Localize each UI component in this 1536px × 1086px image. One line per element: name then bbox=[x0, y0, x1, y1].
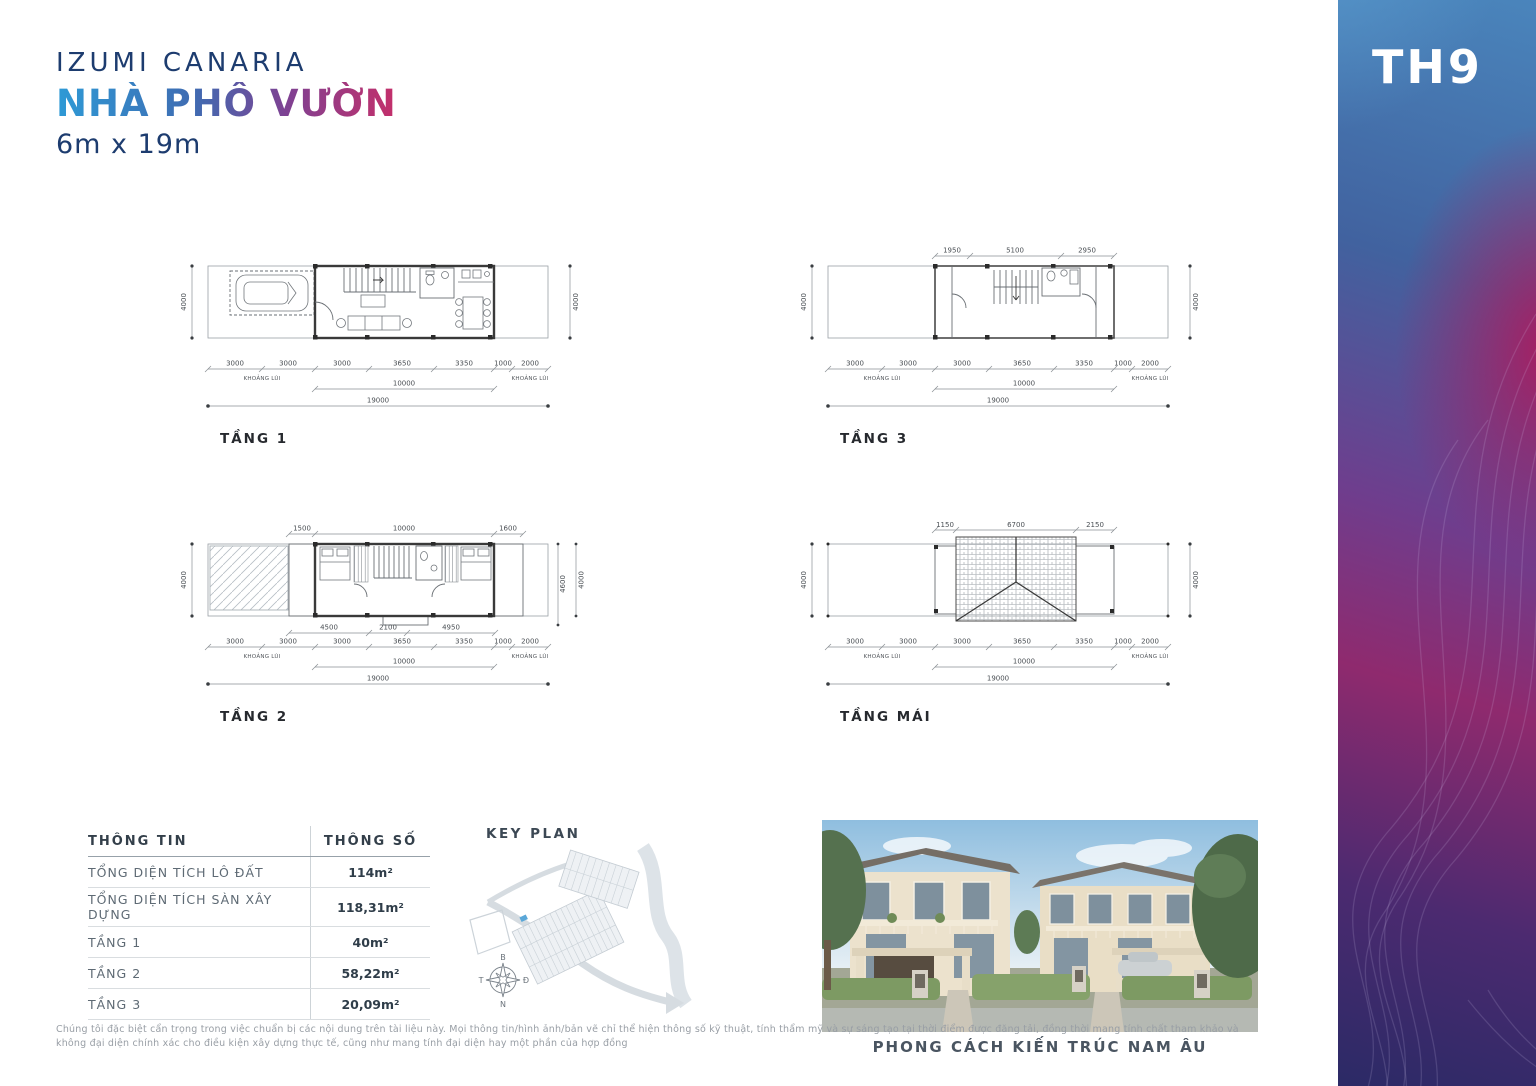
bathroom bbox=[1042, 268, 1080, 296]
disclaimer-text: Chúng tôi đặc biệt cẩn trọng trong việc … bbox=[56, 1023, 1271, 1052]
dim-label: 4000 bbox=[572, 293, 580, 311]
dim-label: 19000 bbox=[367, 675, 389, 683]
table-row: TẦNG 2 58,22m² bbox=[88, 958, 430, 989]
dim-label: 10000 bbox=[393, 658, 415, 666]
setback-label: KHOẢNG LÙI bbox=[512, 652, 549, 660]
dim-label: 10000 bbox=[1013, 658, 1035, 666]
info-table: THÔNG TIN THÔNG SỐ TỔNG DIỆN TÍCH LÔ ĐẤT… bbox=[88, 826, 430, 1020]
dim-label: 4000 bbox=[800, 293, 808, 311]
row-label: TẦNG 2 bbox=[88, 962, 310, 985]
dim-label: 3350 bbox=[455, 638, 473, 646]
row-label: TẦNG 3 bbox=[88, 993, 310, 1016]
floor-plan-tang-2: 1500 10000 1600 4500 2100 4950 4000 4600… bbox=[178, 520, 598, 732]
bedroom-right bbox=[461, 547, 491, 580]
dim-label: 3000 bbox=[333, 638, 351, 646]
row-value: 40m² bbox=[310, 927, 430, 957]
housing-cluster-main bbox=[512, 890, 624, 984]
door-left bbox=[952, 294, 966, 308]
dim-label: 4000 bbox=[800, 571, 808, 589]
setback-label: KHOẢNG LÙI bbox=[244, 652, 281, 660]
dim-label: 3000 bbox=[226, 360, 244, 368]
header: IZUMI CANARIA NHÀ PHỐ VƯỜN 6m x 19m bbox=[56, 48, 397, 160]
bathroom bbox=[416, 546, 442, 580]
dim-label: 10000 bbox=[393, 380, 415, 388]
dim-label: 3350 bbox=[455, 360, 473, 368]
car-cabin bbox=[1128, 952, 1158, 962]
wardrobe-right bbox=[445, 546, 458, 582]
dim-label: 1000 bbox=[1114, 638, 1132, 646]
plan-title: TẦNG MÁI bbox=[840, 706, 932, 725]
floor-plan-tang-1: 4000 4000 3000 3000 3000 3650 3350 1000 … bbox=[178, 242, 598, 454]
compass: B Đ N T bbox=[478, 953, 530, 1009]
dim-label: 3000 bbox=[953, 638, 971, 646]
setback-label: KHOẢNG LÙI bbox=[1132, 652, 1169, 660]
dim-label: 1150 bbox=[936, 521, 954, 529]
row-label: TỔNG DIỆN TÍCH LÔ ĐẤT bbox=[88, 861, 310, 884]
key-plan-title: KEY PLAN bbox=[486, 826, 708, 842]
dim-label: 19000 bbox=[367, 397, 389, 405]
product-title: NHÀ PHỐ VƯỜN bbox=[56, 82, 397, 125]
dim-label: 3000 bbox=[846, 638, 864, 646]
dim-label: 3000 bbox=[899, 360, 917, 368]
row-value: 58,22m² bbox=[310, 958, 430, 988]
dim-label: 3650 bbox=[1013, 638, 1031, 646]
kitchen bbox=[458, 270, 494, 282]
setback-label: KHOẢNG LÙI bbox=[864, 652, 901, 660]
dim-label: 1500 bbox=[293, 525, 311, 533]
dim-label: 3650 bbox=[393, 638, 411, 646]
living-set bbox=[337, 295, 412, 330]
dim-label: 2000 bbox=[1141, 638, 1159, 646]
dim-label: 2100 bbox=[379, 624, 397, 632]
unit-code: TH9 bbox=[1372, 40, 1483, 94]
dim-label: 4000 bbox=[578, 571, 586, 589]
dim-label: 4000 bbox=[1192, 571, 1200, 589]
dim-label: 4950 bbox=[442, 624, 460, 632]
dim-label: 19000 bbox=[987, 675, 1009, 683]
dim-label: 4500 bbox=[320, 624, 338, 632]
key-plan-map: B Đ N T bbox=[458, 842, 708, 1022]
table-header-row: THÔNG TIN THÔNG SỐ bbox=[88, 826, 430, 857]
dim-label: 1000 bbox=[1114, 360, 1132, 368]
dim-label: 4600 bbox=[559, 575, 567, 593]
floor-plan-2-drawing: 1500 10000 1600 4500 2100 4950 4000 4600… bbox=[178, 520, 598, 732]
stairs bbox=[994, 270, 1038, 304]
sidebar-curves-decoration bbox=[1338, 0, 1536, 1086]
compass-north: B bbox=[500, 953, 506, 962]
plan-title: TẦNG 1 bbox=[220, 428, 288, 447]
floor-plan-tang-3: 1950 5100 2950 4000 4000 3000 3000 3000 … bbox=[798, 242, 1218, 454]
dim-label: 3650 bbox=[1013, 360, 1031, 368]
compass-east: Đ bbox=[523, 976, 529, 985]
car bbox=[236, 275, 308, 311]
dim-label: 3000 bbox=[333, 360, 351, 368]
setback-label: KHOẢNG LÙI bbox=[1132, 374, 1169, 382]
bedroom-left bbox=[320, 547, 350, 580]
lot-outline bbox=[828, 266, 1168, 338]
lot-size: 6m x 19m bbox=[56, 129, 397, 160]
door-left bbox=[354, 584, 367, 597]
key-plan: KEY PLAN bbox=[458, 826, 708, 1026]
dim-label: 2000 bbox=[521, 360, 539, 368]
floor-plan-roof-drawing: 1150 6700 2150 4000 4000 3000 3000 3000 … bbox=[798, 520, 1218, 732]
table-row: TẦNG 1 40m² bbox=[88, 927, 430, 958]
house-walls bbox=[933, 264, 1114, 340]
architecture-photo bbox=[822, 820, 1258, 1032]
house-walls bbox=[313, 264, 494, 340]
dim-label: 19000 bbox=[987, 397, 1009, 405]
gradient-sidebar: TH9 bbox=[1338, 0, 1536, 1086]
brochure-page: IZUMI CANARIA NHÀ PHỐ VƯỜN 6m x 19m bbox=[0, 0, 1536, 1086]
setback-label: KHOẢNG LÙI bbox=[864, 374, 901, 382]
row-label: TỔNG DIỆN TÍCH SÀN XÂY DỰNG bbox=[88, 888, 310, 926]
photo-illustration bbox=[822, 820, 1258, 1032]
dim-label: 10000 bbox=[1013, 380, 1035, 388]
bathroom bbox=[420, 268, 454, 298]
dim-label: 3000 bbox=[846, 360, 864, 368]
dim-label: 3000 bbox=[226, 638, 244, 646]
stairs bbox=[344, 268, 416, 292]
col-header-thong-tin: THÔNG TIN bbox=[88, 830, 310, 853]
dining-set bbox=[456, 297, 491, 329]
table-row: TỔNG DIỆN TÍCH SÀN XÂY DỰNG 118,31m² bbox=[88, 888, 430, 927]
stairs bbox=[374, 546, 412, 578]
plan-title: TẦNG 2 bbox=[220, 706, 288, 725]
floor-plan-3-drawing: 1950 5100 2950 4000 4000 3000 3000 3000 … bbox=[798, 242, 1218, 454]
col-header-thong-so: THÔNG SỐ bbox=[310, 826, 430, 856]
dim-label: 3000 bbox=[899, 638, 917, 646]
table-row: TỔNG DIỆN TÍCH LÔ ĐẤT 114m² bbox=[88, 857, 430, 888]
dim-label: 1600 bbox=[499, 525, 517, 533]
dim-label: 1000 bbox=[494, 638, 512, 646]
dim-label: 1000 bbox=[494, 360, 512, 368]
dim-label: 4000 bbox=[180, 571, 188, 589]
door-right bbox=[1082, 294, 1096, 308]
dim-label: 3000 bbox=[279, 360, 297, 368]
compass-west: T bbox=[478, 976, 484, 985]
row-value: 20,09m² bbox=[310, 989, 430, 1019]
table-row: TẦNG 3 20,09m² bbox=[88, 989, 430, 1020]
dim-label: 3350 bbox=[1075, 360, 1093, 368]
dim-label: 6700 bbox=[1007, 521, 1025, 529]
row-value: 114m² bbox=[310, 857, 430, 887]
dim-label: 4000 bbox=[1192, 293, 1200, 311]
entry-door bbox=[315, 302, 333, 320]
car bbox=[1118, 960, 1172, 976]
plan-title: TẦNG 3 bbox=[840, 428, 908, 447]
dim-label: 2950 bbox=[1078, 247, 1096, 255]
row-value: 118,31m² bbox=[310, 888, 430, 926]
dim-label: 4000 bbox=[180, 293, 188, 311]
project-name: IZUMI CANARIA bbox=[56, 48, 397, 78]
dim-label: 3000 bbox=[279, 638, 297, 646]
floor-plan-tang-mai: 1150 6700 2150 4000 4000 3000 3000 3000 … bbox=[798, 520, 1218, 732]
door-right bbox=[432, 584, 445, 597]
lot-outline bbox=[208, 266, 548, 338]
garden-skylight bbox=[210, 546, 288, 610]
dim-label: 3650 bbox=[393, 360, 411, 368]
row-label: TẦNG 1 bbox=[88, 931, 310, 954]
dim-label: 2000 bbox=[1141, 360, 1159, 368]
dim-label: 3350 bbox=[1075, 638, 1093, 646]
dim-label: 10000 bbox=[393, 525, 415, 533]
dim-label: 2150 bbox=[1086, 521, 1104, 529]
compass-south: N bbox=[500, 1000, 506, 1009]
floor-plan-1-drawing: 4000 4000 3000 3000 3000 3650 3350 1000 … bbox=[178, 242, 598, 454]
dim-label: 2000 bbox=[521, 638, 539, 646]
wardrobe-left bbox=[354, 546, 368, 582]
dim-label: 3000 bbox=[953, 360, 971, 368]
dim-label: 5100 bbox=[1006, 247, 1024, 255]
dim-label: 1950 bbox=[943, 247, 961, 255]
setback-label: KHOẢNG LÙI bbox=[244, 374, 281, 382]
roof bbox=[956, 537, 1076, 621]
setback-label: KHOẢNG LÙI bbox=[512, 374, 549, 382]
